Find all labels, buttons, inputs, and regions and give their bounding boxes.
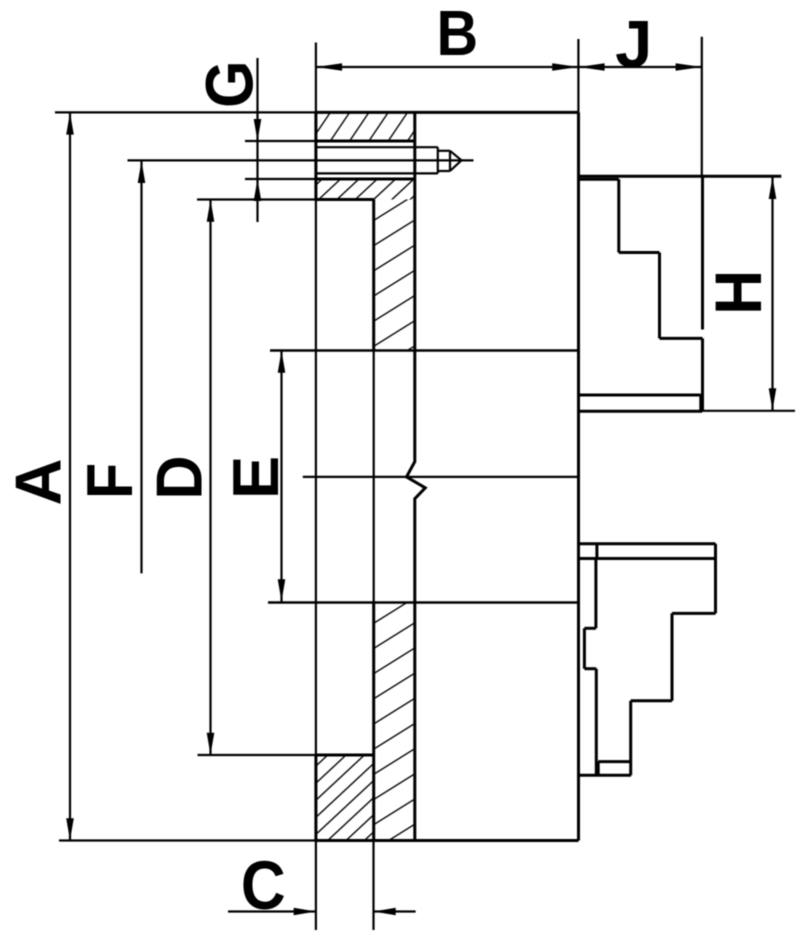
svg-text:B: B [437,0,479,69]
svg-text:E: E [219,456,292,499]
svg-text:H: H [701,270,775,315]
svg-text:C: C [241,847,286,924]
svg-text:A: A [1,459,74,506]
svg-text:J: J [615,7,652,82]
svg-text:F: F [75,463,147,499]
svg-text:G: G [192,60,267,107]
svg-text:D: D [144,455,216,499]
